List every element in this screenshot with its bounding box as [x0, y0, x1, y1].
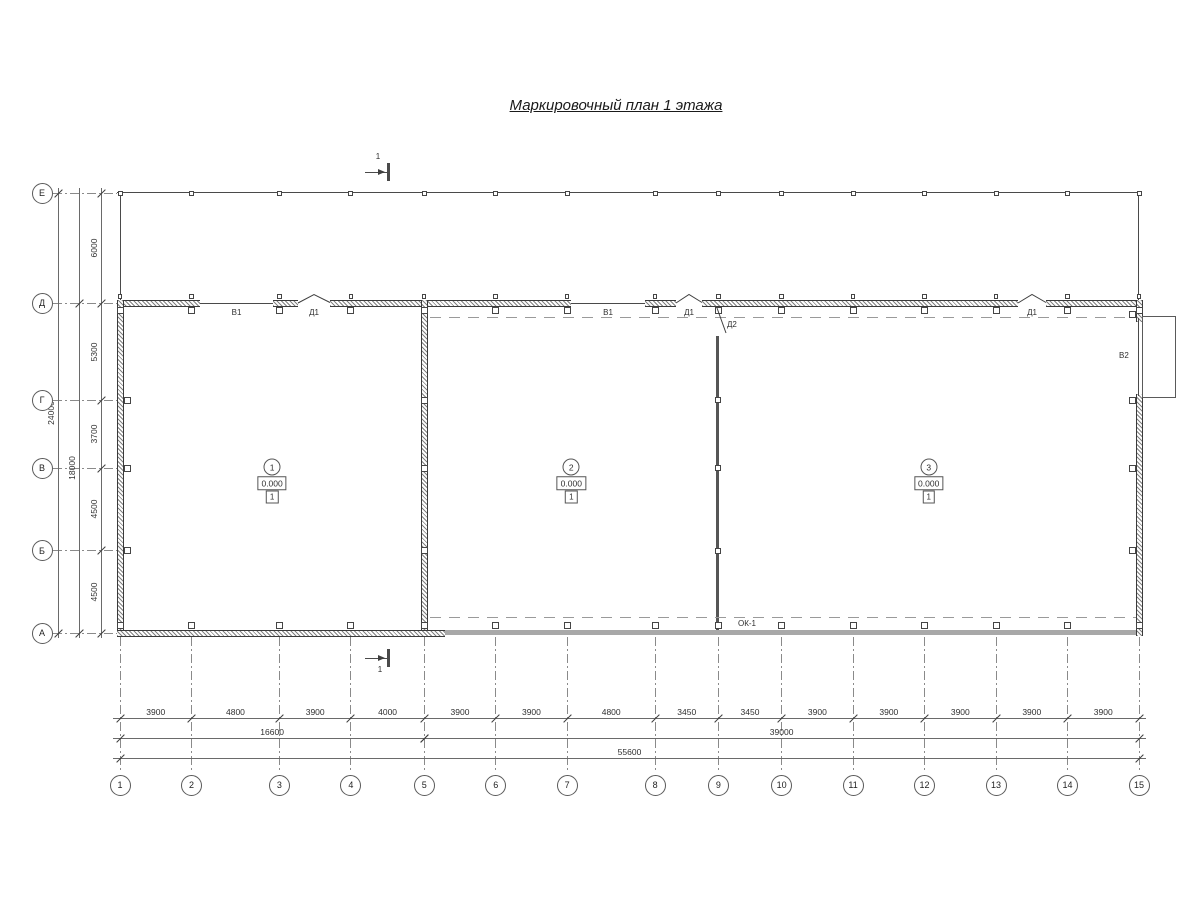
door-leaf	[676, 295, 702, 304]
door-leaf	[298, 295, 330, 304]
inner-door-leaf	[717, 308, 726, 333]
floor-plan-canvas: Маркировочный план 1 этажа 6000530037004…	[0, 0, 1200, 900]
door-leaf-layer	[0, 0, 1200, 900]
door-leaf	[1018, 295, 1046, 304]
